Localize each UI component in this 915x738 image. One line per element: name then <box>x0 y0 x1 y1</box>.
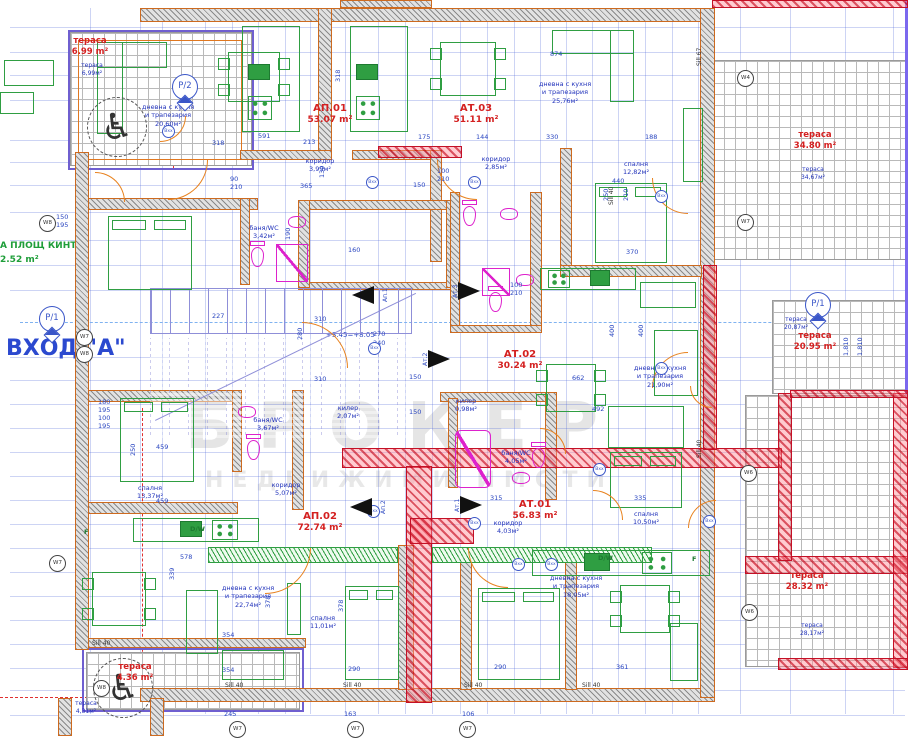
grid-line-h <box>10 715 905 716</box>
dimension-label: 150 <box>409 408 421 416</box>
window-marker: W7 <box>229 721 246 738</box>
dimension-label: 163 <box>344 710 356 718</box>
wall <box>150 698 164 736</box>
terrace-sublabel-line: тераса <box>783 166 843 174</box>
chair <box>218 58 230 70</box>
dimension-label: 1,810 <box>842 337 850 356</box>
room-label: коридор4,03м² <box>482 519 534 536</box>
room-label: спалня13,37м² <box>122 484 178 501</box>
appliance-label: F <box>692 555 696 563</box>
room-label-line: коридор <box>470 155 522 163</box>
room-label-line: и трапезария <box>515 88 615 96</box>
dimension-label: 90 <box>230 175 238 183</box>
terrace-sublabel-line: 6,99м² <box>62 70 122 78</box>
section-arrow <box>458 282 480 300</box>
pillow <box>349 590 368 600</box>
section-arrow <box>428 350 450 368</box>
sill-label: Sill 40 <box>696 440 703 458</box>
highlight-red-wall <box>712 0 908 8</box>
grid-line-h <box>10 380 905 381</box>
toilet-tank <box>250 241 265 246</box>
pillow <box>376 590 393 600</box>
dimension-label: 175 <box>418 133 430 141</box>
dimension-label: 150 <box>409 373 421 381</box>
floor-plan: ВХОД "А" А ПЛОЩ КИНТ 2.52 m² +3.45=+8.05… <box>0 0 915 738</box>
door-swing-arc <box>168 160 208 200</box>
apartment-label: АТ.0351.11 m² <box>446 103 506 126</box>
sill-label: Sill 40 <box>582 682 600 689</box>
dimension-label: 318 <box>334 70 342 82</box>
chair <box>430 78 442 90</box>
window-marker: W6 <box>741 604 758 621</box>
room-label-line: спалня <box>608 160 664 168</box>
chair <box>430 48 442 60</box>
window-marker: W7 <box>49 555 66 572</box>
door-tag: Вхх <box>545 558 558 571</box>
room-label-line: дневна с кухня <box>200 584 296 592</box>
furniture-outline <box>4 60 54 86</box>
apartment-label: АП.0153.07 m² <box>300 103 360 126</box>
section-arrow <box>352 286 374 304</box>
apartment-area: 30.24 m² <box>490 361 550 372</box>
dimension-label: 270 <box>373 330 385 338</box>
dimension-label: 213 <box>303 138 315 146</box>
kitchen-sink <box>590 270 610 286</box>
terrace-label-line: 28.32 m² <box>777 582 837 593</box>
kitchen-sink <box>356 64 378 80</box>
room-label: коридор2,85м² <box>470 155 522 172</box>
dimension-label: 440 <box>612 177 624 185</box>
section-arrow <box>460 496 482 514</box>
dimension-label: 365 <box>300 182 312 190</box>
grid-line-v <box>592 8 593 714</box>
wall <box>140 8 715 22</box>
chair <box>494 48 506 60</box>
room-label-line: спалня <box>618 510 674 518</box>
terrace-sublabel: тераса34,67м² <box>783 166 843 181</box>
grid-line-v <box>618 8 619 714</box>
terrace-sublabel: тераса6,99м² <box>62 62 122 77</box>
door-tag: Вхх <box>655 190 668 203</box>
dining-table <box>440 42 496 96</box>
room-label: дневна с кухняи трапезария18,05м² <box>528 574 624 599</box>
terrace-label-line: 20.95 m² <box>785 342 845 353</box>
terrace-label: тераса20.95 m² <box>785 331 845 352</box>
furniture-outline <box>608 406 684 448</box>
dimension-label: 662 <box>572 374 584 382</box>
chair <box>278 58 290 70</box>
dimension-label: 195 <box>56 221 68 229</box>
dimension-label: 210 <box>437 175 449 183</box>
dining-table <box>620 585 670 633</box>
terrace-sublabel: тераса4,31м² <box>56 700 116 715</box>
chair <box>536 394 548 406</box>
window-marker: W6 <box>740 465 757 482</box>
chair <box>278 84 290 96</box>
dimension-label: 100 <box>510 281 522 289</box>
room-label-line: 2,07м² <box>326 412 370 420</box>
room-label: баня/WC4,05м² <box>492 449 540 466</box>
apartment-area: 72.74 m² <box>290 523 350 534</box>
apartment-area: 53.07 m² <box>300 115 360 126</box>
terrace-label-line: 6.99 m² <box>60 47 120 58</box>
wall <box>298 200 458 210</box>
dimension-label: 378 <box>264 596 272 608</box>
dining-table <box>92 572 146 626</box>
dimension-label: 144 <box>476 133 488 141</box>
dimension-label: 100 <box>437 167 449 175</box>
pillow <box>112 220 146 230</box>
highlight-red-wall <box>410 518 474 544</box>
kitchen-sink <box>248 64 270 80</box>
dimension-label: 591 <box>258 132 270 140</box>
shower <box>455 430 491 488</box>
dimension-label: 354 <box>222 666 234 674</box>
dimension-label: 250 <box>129 444 137 456</box>
dimension-label: 195 <box>98 406 110 414</box>
terrace-sublabel-line: 4,31м² <box>56 708 116 716</box>
apartment-id: АТ.03 <box>446 103 506 115</box>
room-label: коридор5,07м² <box>260 481 312 498</box>
terrace-sublabel-line: тераса <box>782 622 842 630</box>
grid-line-h <box>10 27 905 28</box>
dimension-label: 400 <box>608 325 616 337</box>
section-arrow-label: Ат.2 <box>422 353 429 366</box>
room-label-line: 21,90м² <box>612 381 708 389</box>
stove <box>248 96 272 120</box>
dimension-label: 370 <box>626 248 638 256</box>
door-swing-arc <box>468 548 508 588</box>
highlight-red-wall <box>790 390 908 398</box>
room-label-line: дневна с кухня <box>120 103 216 111</box>
room-label: спалня10,50м² <box>618 510 674 527</box>
dimension-label: 335 <box>634 494 646 502</box>
dimension-label: 361 <box>616 663 628 671</box>
pillow <box>650 456 676 466</box>
chair <box>594 370 606 382</box>
pillow <box>154 220 186 230</box>
chair <box>82 608 94 620</box>
terrace-label: тераса34.80 m² <box>785 130 845 151</box>
highlight-red-wall <box>778 393 792 561</box>
room-label-line: 4,03м² <box>482 527 534 535</box>
stove <box>548 270 570 288</box>
room-label-line: 22,74м² <box>200 601 296 609</box>
door-tag: Вхх <box>468 517 481 530</box>
terrace-label-line: 4.36 m² <box>105 673 165 684</box>
terrace-label-line: тераса <box>785 331 845 342</box>
wall <box>450 325 542 333</box>
window-marker: W8 <box>39 215 56 232</box>
terrace-label: тераса28.32 m² <box>777 571 837 592</box>
plot-border-line <box>905 0 908 395</box>
room-label-line: коридор <box>294 157 346 165</box>
dimension-label: 339 <box>168 568 176 580</box>
door-tag: Вхх <box>162 125 175 138</box>
room-label-line: 11,01м² <box>295 622 351 630</box>
room-label-line: килер <box>444 397 488 405</box>
dimension-label: 318 <box>212 139 224 147</box>
sill-label: Sill 40 <box>92 640 110 647</box>
pillow <box>482 592 515 602</box>
dimension-label: 150 <box>413 181 425 189</box>
room-label: дневна с кухняи трапезария25,76м² <box>515 80 615 105</box>
grid-line-h <box>10 357 905 358</box>
chair <box>536 370 548 382</box>
terrace-label-line: 34.80 m² <box>785 141 845 152</box>
highlight-red-wall <box>778 658 908 670</box>
toilet <box>463 206 476 226</box>
room-label-line: 25,76м² <box>515 97 615 105</box>
sill-label: Sill 40 <box>343 682 361 689</box>
area-note: А ПЛОЩ КИНТ 2.52 m² <box>0 240 76 267</box>
dimension-label: 310 <box>314 375 326 383</box>
toilet-tank <box>246 434 261 439</box>
furniture-outline <box>670 623 698 681</box>
section-arrow-label: Ат.3 <box>452 285 459 298</box>
apartment-id: АТ.01 <box>505 499 565 511</box>
wall <box>318 8 332 156</box>
apartment-area: 51.11 m² <box>446 115 506 126</box>
wall <box>450 192 460 332</box>
pillow <box>614 456 642 466</box>
room-label-line: коридор <box>482 519 534 527</box>
dimension-label: 245 <box>224 710 236 718</box>
dimension-label: 210 <box>510 289 522 297</box>
dimension-label: 227 <box>212 312 224 320</box>
room-label-line: 3,67м² <box>244 424 292 432</box>
door-tag: Вхх <box>593 463 606 476</box>
room-label-line: 5,07м² <box>260 489 312 497</box>
door-tag: Вхх <box>655 362 668 375</box>
terrace-sublabel-line: 28,17м² <box>782 630 842 638</box>
section-arrow-label: Ат.1 <box>454 499 461 512</box>
room-label-line: дневна с кухня <box>515 80 615 88</box>
terrace-label-line: тераса <box>105 662 165 673</box>
window-marker: W7 <box>76 329 93 346</box>
wall <box>240 198 250 285</box>
room-label-line: и трапезария <box>120 111 216 119</box>
appliance-label: F <box>84 528 88 536</box>
chair <box>610 615 622 627</box>
sill-label: Sill 67 <box>696 48 703 66</box>
room-label-line: дневна с кухня <box>528 574 624 582</box>
dimension-label: 130 <box>318 166 326 178</box>
furniture-outline <box>222 650 284 680</box>
wall <box>460 557 472 690</box>
appliance-label: D/W <box>598 554 613 562</box>
section-arrow-label: Ап.1 <box>382 288 389 302</box>
window-marker: W8 <box>76 346 93 363</box>
toilet-tank <box>462 200 477 205</box>
dimension-label: 290 <box>494 663 506 671</box>
room-label-line: 3,42м² <box>240 232 288 240</box>
dining-table <box>546 364 596 412</box>
room-label-line: баня/WC <box>240 224 288 232</box>
dimension-label: 354 <box>222 631 234 639</box>
dimension-label: 106 <box>462 710 474 718</box>
apartment-id: АП.02 <box>290 511 350 523</box>
area-note-line1: А ПЛОЩ КИНТ <box>0 240 76 254</box>
wall <box>340 0 432 8</box>
dimension-label: 874 <box>550 50 562 58</box>
room-label-line: 0,98м² <box>444 405 488 413</box>
dimension-label: 1,810 <box>856 337 864 356</box>
dimension-label: 180 <box>98 398 110 406</box>
room-label-line: спалня <box>295 614 351 622</box>
dimension-label: 100 <box>98 414 110 422</box>
pillow <box>124 402 153 412</box>
terrace-sublabel-line: 34,67м² <box>783 174 843 182</box>
room-label-line: 4,05м² <box>492 457 540 465</box>
highlight-red-wall <box>703 265 717 450</box>
wall <box>560 148 572 272</box>
chair <box>218 84 230 96</box>
sill-label: Sill 40 <box>608 187 615 205</box>
room-label: дневна с кухняи трапезария22,74м² <box>200 584 296 609</box>
room-label: килер0,98м² <box>444 397 488 414</box>
terrace-label-line: тераса <box>785 130 845 141</box>
dimension-label: 459 <box>156 497 168 505</box>
terrace-sublabel-line: тераса <box>62 62 122 70</box>
terrace-sublabel: тераса28,17м² <box>782 622 842 637</box>
door-tag: Вхх <box>468 176 481 189</box>
room-label: баня/WC3,42м² <box>240 224 288 241</box>
chair <box>494 78 506 90</box>
apartment-label: АТ.0230.24 m² <box>490 349 550 372</box>
terrace-label-line: тераса <box>777 571 837 582</box>
room-label-line: 18,05м² <box>528 591 624 599</box>
appliance-label: D/W <box>190 525 205 533</box>
dimension-label: 378 <box>337 600 345 612</box>
chair <box>668 615 680 627</box>
door-tag: Вхх <box>368 342 381 355</box>
dimension-label: 400 <box>637 325 645 337</box>
stove <box>642 552 672 574</box>
furniture-outline <box>683 108 703 182</box>
room-label-line: 2,85м² <box>470 163 522 171</box>
dimension-label: 290 <box>348 665 360 673</box>
furniture-outline <box>640 282 696 308</box>
dimension-label: 190 <box>284 228 292 240</box>
dimension-label: 578 <box>180 553 192 561</box>
bathroom-sink <box>512 472 530 484</box>
dimension-label: 330 <box>546 133 558 141</box>
room-label-line: и трапезария <box>528 582 624 590</box>
room-label: баня/WC3,67м² <box>244 416 292 433</box>
door-swing-arc <box>95 172 125 202</box>
kitchen-counter <box>532 550 710 576</box>
window-marker: W7 <box>459 721 476 738</box>
apartment-label: АП.0272.74 m² <box>290 511 350 534</box>
room-label: спалня11,01м² <box>295 614 351 631</box>
wall <box>530 192 542 332</box>
bathroom-sink <box>288 216 306 228</box>
room-label: килер2,07м² <box>326 404 370 421</box>
dimension-label: 310 <box>314 315 326 323</box>
window-marker: W7 <box>737 214 754 231</box>
dimension-label: 150 <box>56 213 68 221</box>
dimension-label: 160 <box>348 246 360 254</box>
wall <box>75 152 89 650</box>
chair <box>82 578 94 590</box>
apartment-id: АП.01 <box>300 103 360 115</box>
sill-label: Sill 40 <box>464 682 482 689</box>
room-label-line: 13,37м² <box>122 492 178 500</box>
dimension-label: 188 <box>645 133 657 141</box>
toilet <box>251 247 264 267</box>
terrace-sublabel-line: тераса <box>56 700 116 708</box>
shower <box>276 244 308 282</box>
dimension-label: 195 <box>98 422 110 430</box>
terrace-label-line: тераса <box>60 36 120 47</box>
highlight-red-wall <box>378 146 462 158</box>
room-label-line: и трапезария <box>200 592 296 600</box>
room-label: спалня12,82м² <box>608 160 664 177</box>
window-marker: W7 <box>347 721 364 738</box>
stove <box>212 520 238 540</box>
door-tag: Вхх <box>703 515 716 528</box>
room-label-line: баня/WC <box>244 416 292 424</box>
sill-label: Sill 40 <box>225 682 243 689</box>
bathroom-sink <box>500 208 518 220</box>
window-marker: W4 <box>737 70 754 87</box>
dimension-label: 459 <box>156 443 168 451</box>
section-arrow-label: Ап.2 <box>380 500 387 514</box>
terrace-label: тераса6.99 m² <box>60 36 120 57</box>
highlight-red-wall <box>406 466 432 703</box>
room-label-line: коридор <box>260 481 312 489</box>
dimension-label: 315 <box>490 494 502 502</box>
window-marker: W8 <box>93 680 110 697</box>
chair <box>144 578 156 590</box>
dimension-label: 210 <box>230 183 242 191</box>
section-arrow <box>350 498 372 516</box>
pillow <box>161 402 188 412</box>
room-label-line: килер <box>326 404 370 412</box>
dimension-label: 280 <box>296 328 304 340</box>
dimension-label: 210 <box>622 189 630 201</box>
room-label-line: спалня <box>122 484 178 492</box>
terrace-label: тераса4.36 m² <box>105 662 165 683</box>
room-label-line: 12,82м² <box>608 168 664 176</box>
room-label-line: баня/WC <box>492 449 540 457</box>
shower <box>482 268 510 296</box>
chair <box>144 608 156 620</box>
apartment-id: АТ.02 <box>490 349 550 361</box>
chair <box>668 591 680 603</box>
room-label-line: 10,50м² <box>618 518 674 526</box>
furniture-outline <box>0 92 34 114</box>
door-tag: Вхх <box>512 558 525 571</box>
door-tag: Вхх <box>366 176 379 189</box>
dimension-label: 492 <box>592 405 604 413</box>
highlight-red-wall <box>893 393 908 668</box>
